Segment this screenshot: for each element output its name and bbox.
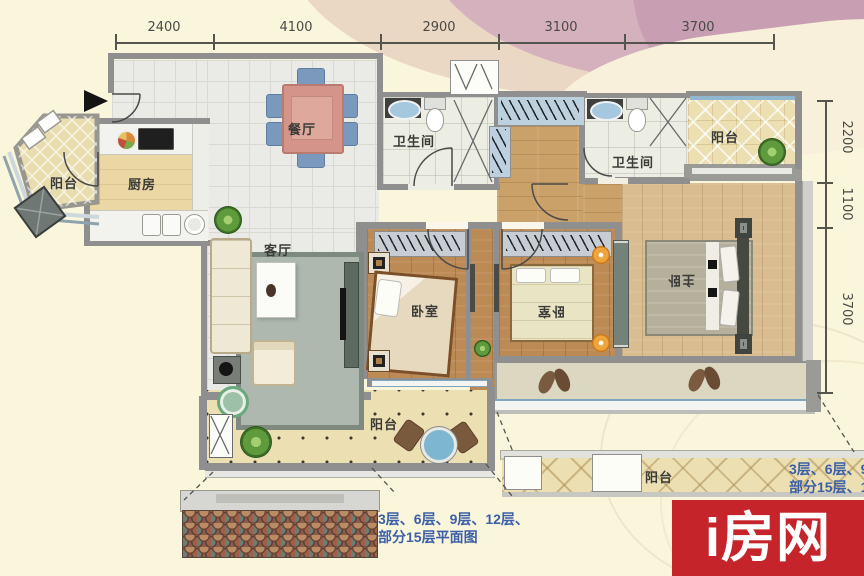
bath1-door-gap	[408, 184, 454, 190]
floors-caption-line2: 部分15层平面图	[378, 528, 529, 546]
balcony-door-panel1	[470, 264, 475, 312]
room-label-dining: 餐厅	[288, 119, 316, 138]
master-bed-remote2	[708, 288, 717, 297]
dim-top-2900: 2900	[409, 20, 469, 35]
balcony-table-icon	[421, 427, 457, 463]
bedroom1-pillow-icon	[374, 279, 403, 318]
floors-caption-right-line1: 3层、6层、9	[789, 460, 864, 478]
wall-living-left	[201, 246, 207, 398]
plant-living-icon	[214, 206, 242, 234]
dim-top-4100: 4100	[266, 20, 326, 35]
dim-right-1100: 1100	[838, 184, 854, 224]
roof-sill-band	[216, 494, 344, 503]
dim-tick-r3	[817, 227, 833, 229]
wall-master-right	[795, 181, 802, 361]
wall-dining-bath1	[377, 92, 383, 190]
bath1-sink-icon	[388, 100, 421, 120]
dim-top-2400: 2400	[134, 20, 194, 35]
wall-balcony-b-left	[199, 396, 207, 470]
plant-balcony-tr-icon	[758, 138, 786, 166]
plant-balcony-b-icon	[240, 426, 272, 458]
dim-tick-t4	[498, 34, 500, 50]
dim-right-3700: 3700	[838, 289, 854, 329]
bath2-toilet-icon	[628, 108, 646, 132]
wall-bedrooms-top	[356, 222, 622, 229]
food-plate-icon	[116, 130, 137, 151]
duct-shaft	[450, 60, 499, 95]
floors-caption-right: 3层、6层、9 部分15层、1	[789, 460, 864, 496]
bay-window-outer	[495, 410, 815, 414]
kitchen-sink-icon	[142, 214, 161, 236]
room-label-kitchen: 厨房	[128, 174, 156, 193]
bedroom2-lamp-top-icon	[592, 246, 610, 264]
sofa	[210, 238, 252, 354]
closet-left-hangers-icon	[492, 129, 506, 173]
dim-tick-t3	[380, 34, 382, 50]
wall-bath2-bottom	[579, 178, 690, 184]
wall-top-main	[108, 53, 382, 59]
dim-tick-r4	[817, 392, 833, 394]
watermark-logo: i房网	[672, 500, 864, 576]
room-label-bedroom1: 卧室	[411, 301, 439, 320]
dim-right-2200: 2200	[838, 117, 854, 157]
tv-icon	[340, 288, 346, 340]
wall-balcony-tr-right	[795, 91, 802, 169]
stove-icon	[138, 128, 174, 150]
kitchen-sink2-icon	[162, 214, 181, 236]
master-nightstand-bottom	[735, 334, 752, 354]
bath2-sink-icon	[590, 101, 623, 121]
dim-tick-t2	[213, 34, 215, 50]
balcony-door-panel2	[494, 264, 499, 312]
bath1-toilet-icon	[426, 108, 444, 132]
hallway-floor2	[583, 184, 622, 222]
floors-caption: 3层、6层、9层、12层、 部分15层平面图	[378, 510, 529, 546]
wall-balcony-b-bottom	[205, 463, 495, 471]
bedroom2-pillow2-icon	[550, 268, 580, 283]
master-bed-runner	[706, 242, 719, 330]
bedroom2-lamp-bottom-icon	[592, 334, 610, 352]
sofa-side-table-dot	[219, 362, 233, 376]
wall-left-upper	[108, 53, 114, 93]
dim-tick-t6	[773, 34, 775, 50]
tv-cabinet	[344, 262, 359, 368]
coffee-table-decor	[266, 284, 276, 297]
balcony-br-box2	[592, 454, 642, 492]
balcony-b-sill	[205, 471, 495, 478]
dim-tick-t5	[624, 34, 626, 50]
dim-line-right	[825, 100, 827, 392]
room-label-balcony-tl: 阳台	[50, 173, 78, 192]
bay-end-cap	[806, 360, 821, 412]
armchair	[252, 340, 296, 386]
wall-balcony-b-right	[487, 387, 495, 471]
master-headboard	[737, 238, 749, 334]
bedroom2-hangers-icon	[506, 235, 606, 251]
coffee-table	[256, 262, 296, 318]
bath2-door-gap	[598, 178, 628, 184]
dim-tick-t1	[115, 34, 117, 50]
kitchen-hob-icon	[184, 214, 205, 235]
floors-caption-right-line2: 部分15层、1	[789, 478, 864, 496]
master-bed-remote1	[708, 260, 717, 269]
balcony-tr-bottom-window	[692, 168, 792, 174]
dim-tick-r2	[817, 182, 833, 184]
bedroom1-window-glass	[372, 380, 487, 387]
closet-hangers-icon	[501, 100, 579, 120]
room-label-balcony-bottom: 阳台	[370, 414, 398, 433]
plant-corridor-icon	[474, 340, 491, 357]
flue-box	[209, 414, 233, 458]
room-label-balcony-tr: 阳台	[711, 127, 739, 146]
roof-tiles	[182, 510, 378, 558]
floors-caption-line1: 3层、6层、9层、12层、	[378, 510, 529, 528]
dim-tick-r1	[817, 100, 833, 102]
room-label-bath1: 卫生间	[393, 131, 435, 150]
master-nightstand-top	[735, 218, 752, 238]
bedroom1-door-gap	[426, 222, 468, 229]
room-label-balcony-br: 阳台	[645, 467, 673, 486]
balcony-br-box1	[504, 456, 542, 490]
master-pillow1-icon	[719, 245, 740, 283]
wall-bay-top	[495, 356, 813, 363]
bedroom1-nightstand-bottom	[368, 350, 390, 372]
bedroom2-pillow1-icon	[516, 268, 546, 283]
master-wardrobe	[613, 240, 629, 348]
room-label-master: 主卧	[667, 272, 695, 291]
floor-plan-canvas: 阳台 厨房 餐厅 卫生间 卫生间 阳台 客厅 卧室 卧室 主卧 阳台 阳台 24…	[0, 0, 864, 576]
bedroom2-door-gap	[502, 222, 544, 229]
bedroom1-hangers-icon	[378, 235, 460, 251]
entry-hall-floor	[112, 60, 209, 120]
room-label-living: 客厅	[264, 240, 292, 259]
dim-top-3100: 3100	[531, 20, 591, 35]
room-label-bedroom2: 卧室	[537, 303, 565, 322]
dim-top-3700: 3700	[668, 20, 728, 35]
room-label-bath2: 卫生间	[612, 152, 654, 171]
balcony-tr-window	[690, 96, 796, 100]
entry-arrow-icon	[84, 90, 108, 112]
master-right-sill	[802, 181, 813, 361]
